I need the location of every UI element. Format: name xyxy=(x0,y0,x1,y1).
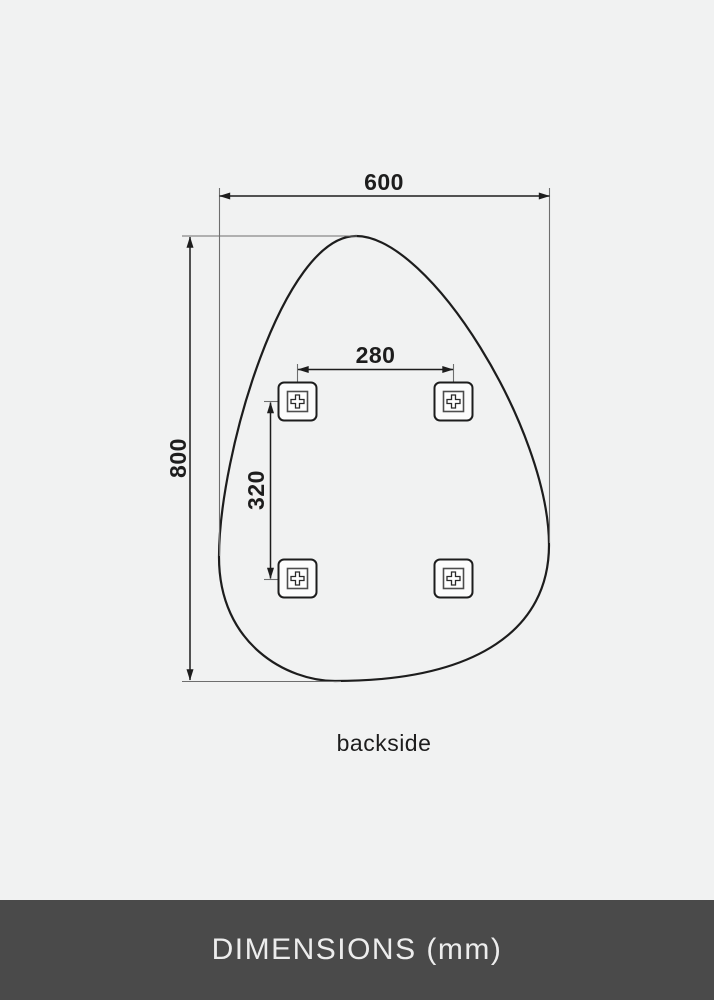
dimension-spacing-vertical-label: 320 xyxy=(243,470,269,510)
dimension-spacing-horizontal-label: 280 xyxy=(356,342,396,368)
dimension-height-800: 800 xyxy=(165,236,357,682)
view-label: backside xyxy=(337,730,432,756)
dimension-height-label: 800 xyxy=(165,438,191,478)
footer-title: DIMENSIONS (mm) xyxy=(212,933,503,967)
dimension-bracket-spacing-320: 320 xyxy=(243,402,279,580)
mount-bracket-top-right xyxy=(435,383,473,421)
dimension-bracket-spacing-280: 280 xyxy=(298,342,454,383)
dimension-width-label: 600 xyxy=(364,169,404,195)
footer-bar: DIMENSIONS (mm) xyxy=(0,900,714,1000)
mount-bracket-bottom-left xyxy=(279,560,317,598)
mount-bracket-top-left xyxy=(279,383,317,421)
mount-bracket-bottom-right xyxy=(435,560,473,598)
mirror-dimension-sheet: 600 800 280 320 xyxy=(0,0,714,1000)
mirror-outline xyxy=(219,236,549,681)
technical-drawing: 600 800 280 320 xyxy=(0,0,714,900)
